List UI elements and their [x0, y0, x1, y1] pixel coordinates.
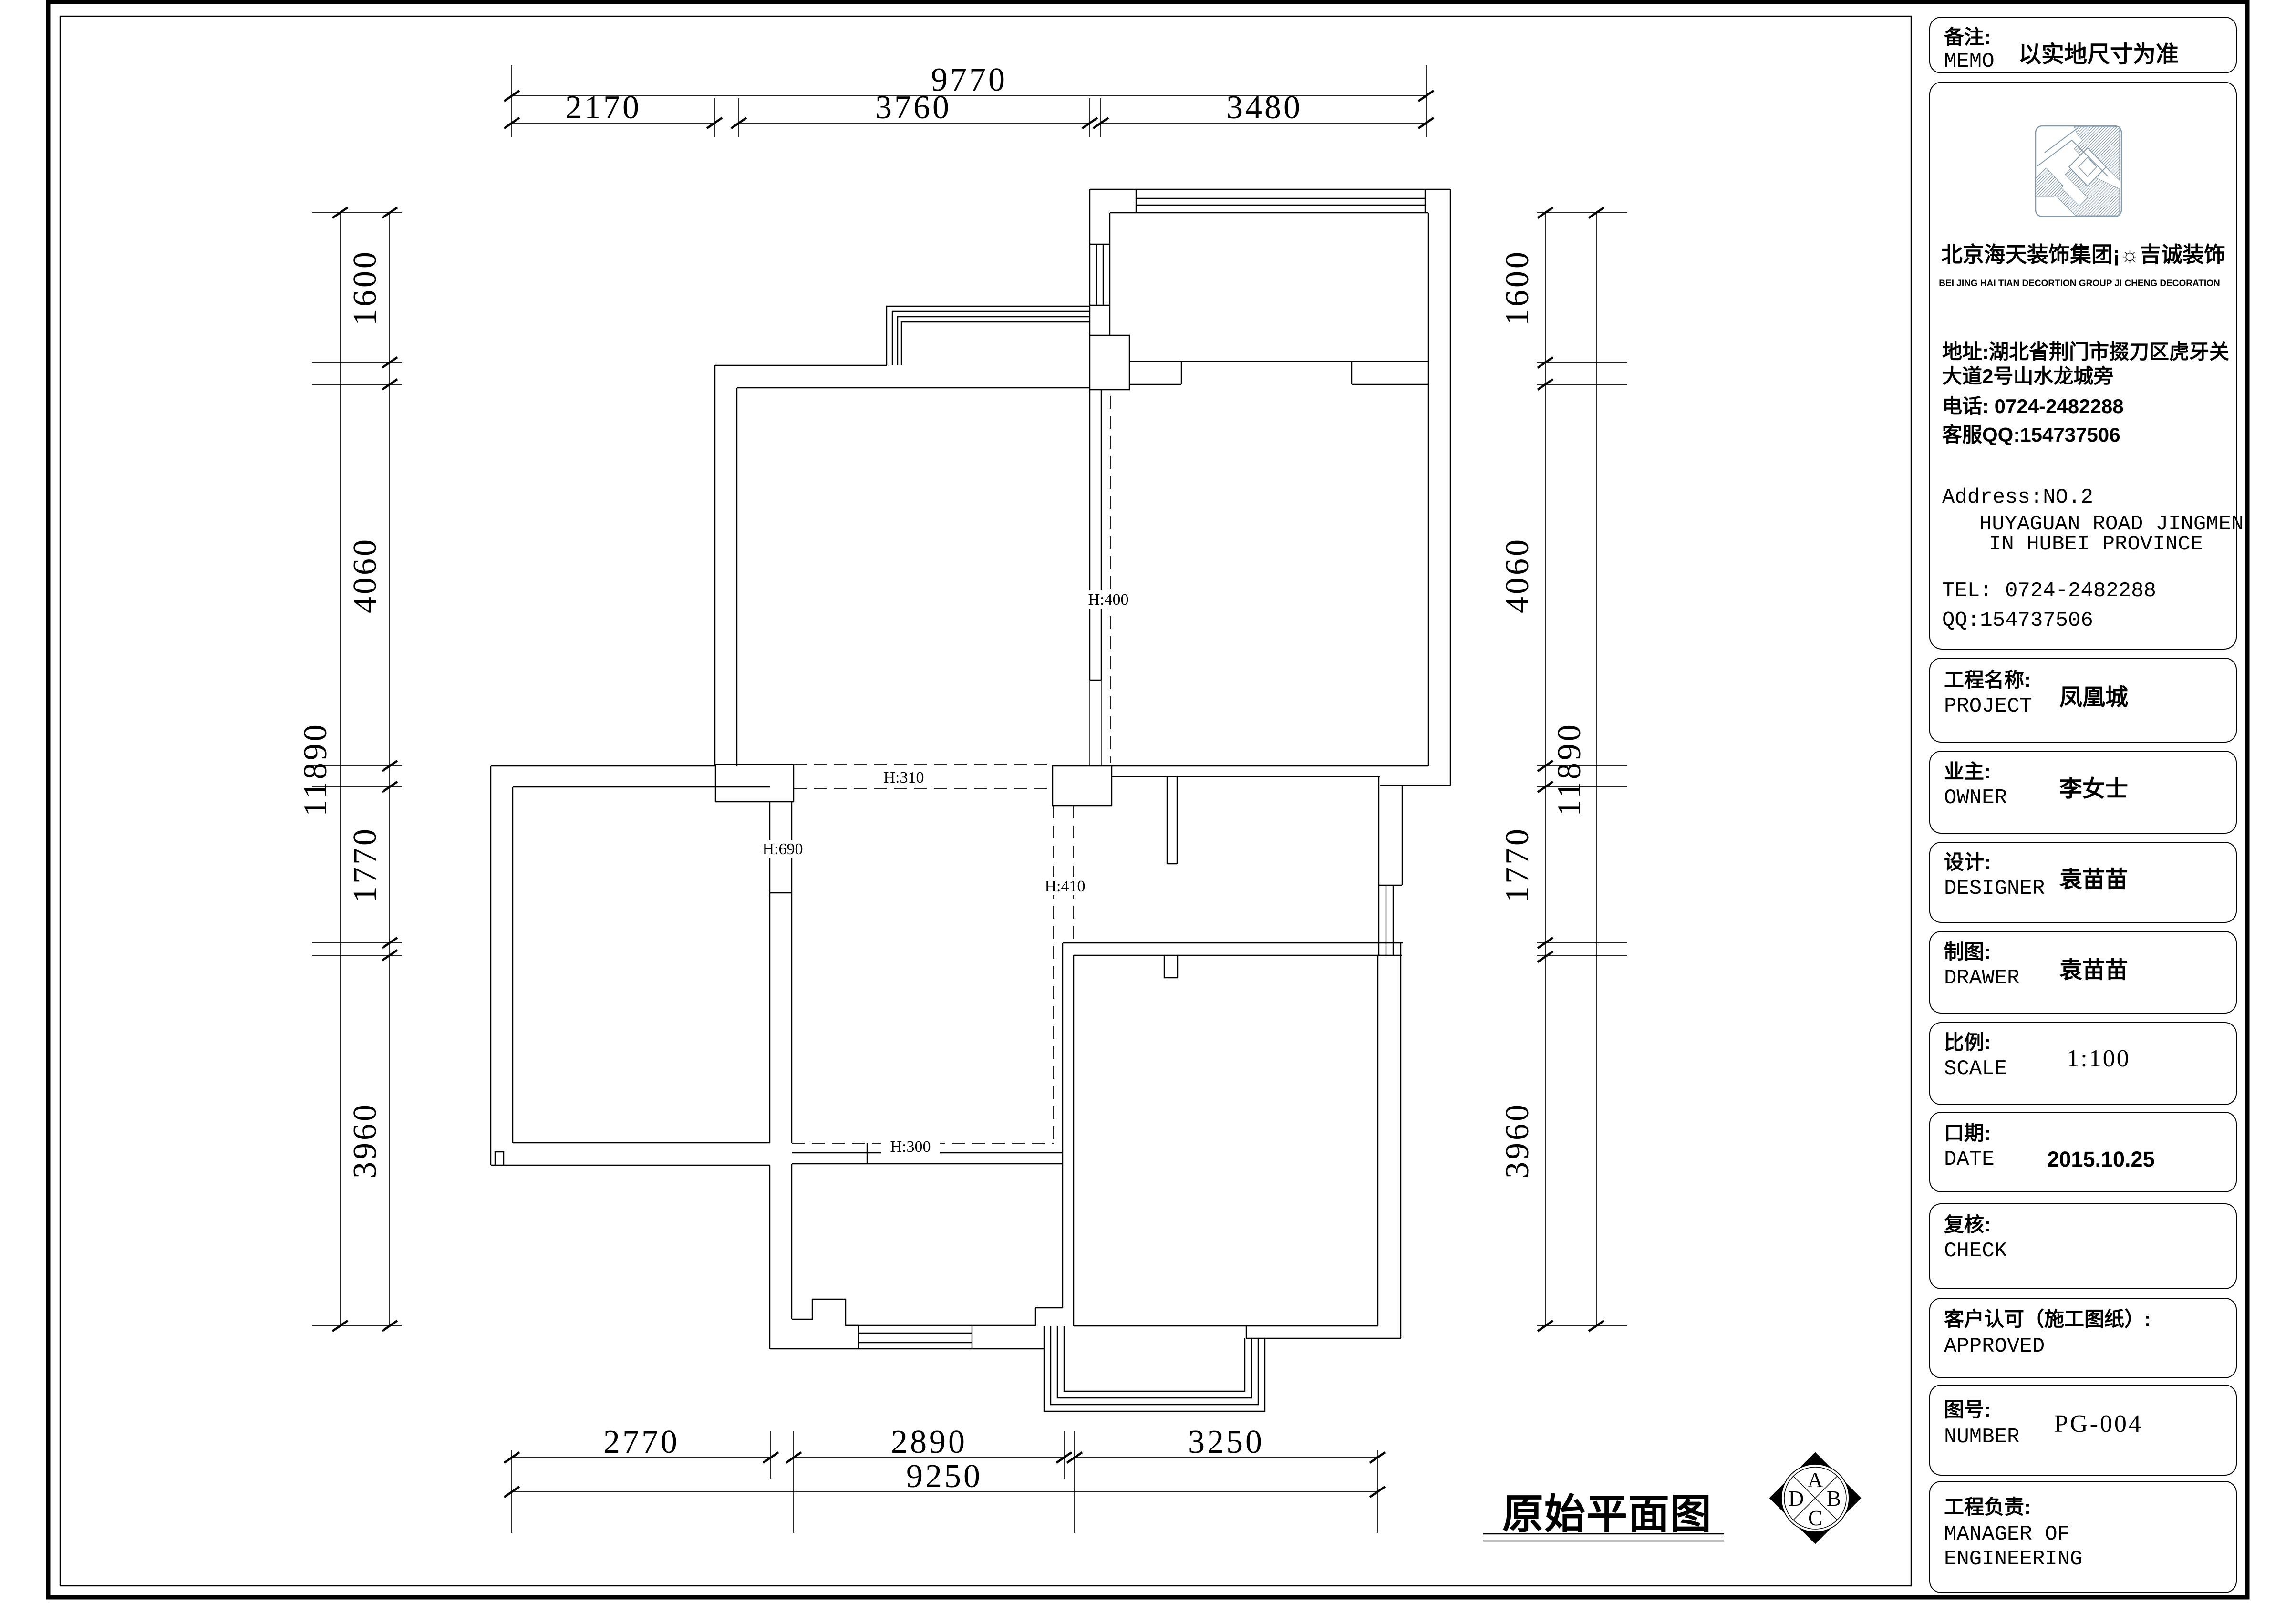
- svg-text:SCALE: SCALE: [1944, 1057, 2007, 1081]
- svg-text:H:400: H:400: [1088, 591, 1129, 609]
- svg-text:D: D: [1789, 1487, 1804, 1510]
- svg-text:OWNER: OWNER: [1944, 786, 2007, 810]
- svg-text:客服QQ:154737506: 客服QQ:154737506: [1942, 424, 2120, 446]
- svg-text:CHECK: CHECK: [1944, 1239, 2007, 1263]
- svg-text:设计:: 设计:: [1944, 851, 1991, 873]
- svg-text:PROJECT: PROJECT: [1944, 694, 2032, 718]
- svg-text:B: B: [1827, 1487, 1841, 1510]
- svg-text:Address:NO.2: Address:NO.2: [1942, 486, 2093, 509]
- svg-text:1600: 1600: [347, 249, 383, 326]
- svg-text:3960: 3960: [347, 1102, 383, 1179]
- svg-text:1:100: 1:100: [2067, 1045, 2130, 1072]
- svg-text:11890: 11890: [1551, 722, 1588, 816]
- svg-text:QQ:154737506: QQ:154737506: [1942, 609, 2093, 632]
- svg-text:比例:: 比例:: [1944, 1031, 1991, 1054]
- svg-text:工程名称:: 工程名称:: [1944, 669, 2031, 691]
- svg-text:原始平面图: 原始平面图: [1502, 1491, 1712, 1537]
- svg-text:4060: 4060: [347, 537, 383, 613]
- svg-text:BEI JING HAI TIAN DECORTION GR: BEI JING HAI TIAN DECORTION GROUP JI CHE…: [1939, 279, 2220, 289]
- svg-text:NUMBER: NUMBER: [1944, 1425, 2019, 1449]
- svg-text:图号:: 图号:: [1944, 1398, 1991, 1421]
- svg-text:3250: 3250: [1188, 1424, 1264, 1460]
- svg-text:3760: 3760: [875, 89, 951, 126]
- svg-text:IN HUBEI PROVINCE: IN HUBEI PROVINCE: [1989, 532, 2203, 556]
- svg-text:1770: 1770: [347, 827, 383, 903]
- svg-text:H:690: H:690: [763, 840, 803, 858]
- svg-text:ENGINEERING: ENGINEERING: [1944, 1547, 2082, 1571]
- svg-text:PG-004: PG-004: [2054, 1410, 2143, 1438]
- svg-text:袁苗苗: 袁苗苗: [2059, 958, 2128, 983]
- svg-text:MEMO: MEMO: [1944, 50, 1995, 73]
- svg-text:MANAGER OF: MANAGER OF: [1944, 1522, 2070, 1546]
- svg-text:大道2号山水龙城旁: 大道2号山水龙城旁: [1942, 365, 2113, 387]
- svg-text:A: A: [1808, 1468, 1823, 1492]
- svg-text:9250: 9250: [906, 1458, 983, 1495]
- svg-text:凤凰城: 凤凰城: [2059, 685, 2128, 710]
- svg-text:3960: 3960: [1499, 1102, 1536, 1179]
- svg-text:C: C: [1808, 1506, 1822, 1530]
- svg-text:1600: 1600: [1499, 249, 1536, 326]
- svg-text:业主:: 业主:: [1944, 760, 1991, 783]
- svg-text:客户认可（施工图纸）:: 客户认可（施工图纸）:: [1944, 1308, 2151, 1330]
- svg-text:DRAWER: DRAWER: [1944, 966, 2019, 990]
- svg-text:口期:: 口期:: [1944, 1122, 1991, 1144]
- svg-text:2015.10.25: 2015.10.25: [2047, 1147, 2154, 1171]
- svg-text:TEL: 0724-2482288: TEL: 0724-2482288: [1942, 579, 2156, 603]
- svg-text:复核:: 复核:: [1944, 1213, 1991, 1236]
- svg-text:电话: 0724-2482288: 电话: 0724-2482288: [1942, 395, 2124, 417]
- svg-text:APPROVED: APPROVED: [1944, 1334, 2045, 1358]
- svg-text:1770: 1770: [1499, 827, 1536, 903]
- svg-text:工程负责:: 工程负责:: [1944, 1496, 2031, 1518]
- svg-text:地址:湖北省荆门市掇刀区虎牙关: 地址:湖北省荆门市掇刀区虎牙关: [1942, 341, 2229, 363]
- svg-text:2890: 2890: [891, 1424, 967, 1460]
- svg-text:H:300: H:300: [890, 1138, 931, 1156]
- svg-text:DESIGNER: DESIGNER: [1944, 877, 2045, 900]
- svg-text:李女士: 李女士: [2059, 776, 2128, 802]
- svg-text:制图:: 制图:: [1944, 941, 1991, 963]
- svg-text:DATE: DATE: [1944, 1148, 1995, 1171]
- svg-text:11890: 11890: [297, 722, 334, 816]
- svg-text:2770: 2770: [603, 1424, 680, 1460]
- svg-text:2170: 2170: [565, 89, 641, 126]
- svg-text:北京海天装饰集团¡☼吉诚装饰: 北京海天装饰集团¡☼吉诚装饰: [1941, 242, 2225, 267]
- svg-text:3480: 3480: [1226, 89, 1303, 126]
- svg-text:H:310: H:310: [884, 769, 924, 786]
- svg-text:备注:: 备注:: [1944, 26, 1991, 48]
- svg-text:4060: 4060: [1499, 537, 1536, 613]
- svg-text:以实地尺寸为准: 以实地尺寸为准: [2018, 42, 2179, 67]
- svg-text:H:410: H:410: [1045, 878, 1086, 895]
- svg-text:袁苗苗: 袁苗苗: [2059, 867, 2128, 892]
